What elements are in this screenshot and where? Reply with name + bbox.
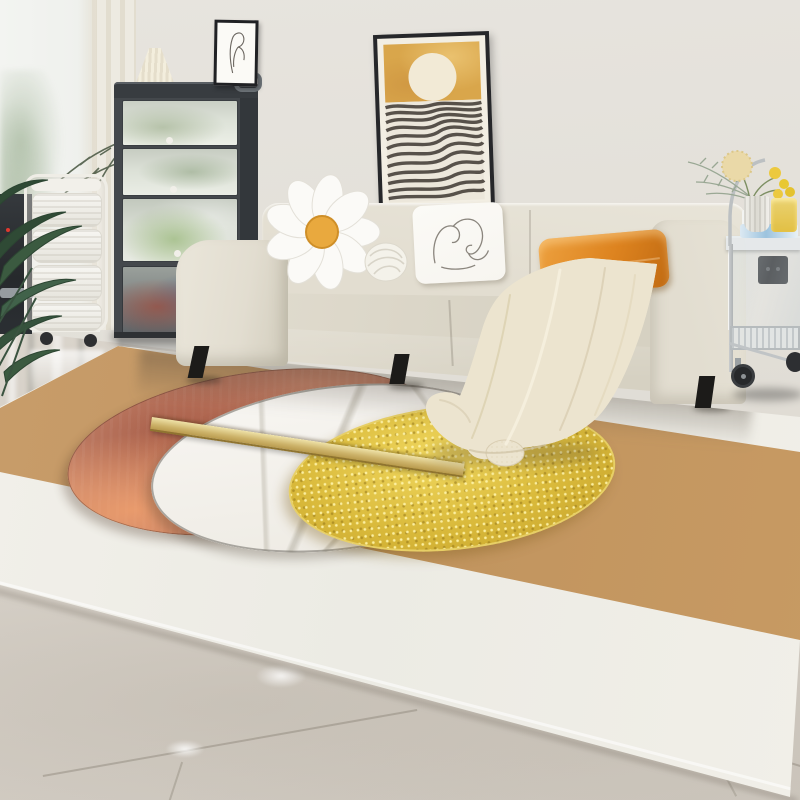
cart-drawer <box>32 229 102 263</box>
sun-waves-art <box>373 31 495 211</box>
orange-pillow <box>538 229 671 298</box>
abstract-face-line-icon <box>418 208 499 278</box>
rug-copper-circle <box>57 346 460 558</box>
left-floor-reflection <box>8 332 116 404</box>
tile-mottle <box>0 560 800 800</box>
grout-line <box>155 762 183 800</box>
cart-drawer <box>32 303 102 331</box>
cabinet-top-cap <box>114 82 258 98</box>
trolley-white-box <box>742 210 768 226</box>
rug-bottom-edge-seam <box>0 580 793 791</box>
houseplant-leaves <box>0 168 136 403</box>
trolley-top-shelf <box>726 236 800 250</box>
sofa-backrest <box>262 203 746 305</box>
leg-shadow <box>388 382 424 390</box>
device-led-red <box>6 228 10 232</box>
wall <box>0 0 800 480</box>
cabinet-base <box>114 332 258 338</box>
cabinet-knob <box>166 137 173 144</box>
rug-cast-shadow <box>0 588 798 800</box>
trolley-blue-tissue <box>740 224 798 238</box>
grout-line <box>43 709 418 777</box>
living-room-photo <box>0 0 800 800</box>
socket-pin <box>766 267 770 271</box>
floor-shine <box>255 664 307 688</box>
yellow-jar <box>771 198 797 232</box>
window-plant-blur <box>0 70 70 250</box>
cart-caster <box>40 332 53 345</box>
cart-drawer <box>32 193 102 227</box>
trolley-frame-curve <box>680 140 800 260</box>
power-socket <box>758 256 788 284</box>
art-mustard-sky <box>383 41 481 102</box>
sofa-back-seam <box>529 210 531 298</box>
grout-line <box>665 663 737 796</box>
cabinet-door-3 <box>122 198 238 262</box>
cabinet-door-1 <box>122 100 238 146</box>
curtain-soft-edge <box>78 0 96 330</box>
window <box>0 0 100 332</box>
cart-caster <box>84 334 97 347</box>
tile-floor <box>0 0 800 800</box>
sofa-seat-front-highlight <box>178 290 746 402</box>
storage-cabinet <box>114 82 258 338</box>
sheer-curtain <box>92 0 136 330</box>
leg-shadow <box>186 376 222 384</box>
cart-reflection <box>30 350 104 394</box>
rug-gold-bar <box>150 417 465 478</box>
lamp-stem <box>153 86 156 100</box>
sofa-leg <box>389 354 409 384</box>
trolley-diagonal-bar <box>729 342 800 366</box>
sofa-seat-seam <box>448 300 453 366</box>
throw-blanket <box>410 250 670 470</box>
palm-fronds-icon <box>40 85 210 205</box>
rug-tan-band <box>0 0 800 800</box>
area-rug <box>0 0 800 800</box>
trolley-glass-body <box>728 250 800 330</box>
caster-wheel <box>786 352 800 372</box>
floor-shine <box>165 740 205 758</box>
rug-gold-circle <box>281 389 622 566</box>
cabinet-reflection <box>118 338 256 368</box>
figure-sketch-icon <box>221 27 252 80</box>
cart-drawer <box>32 265 102 301</box>
socket-pin <box>776 267 780 271</box>
knot-ball-pillow <box>364 242 408 282</box>
caster-wheel <box>731 364 755 388</box>
leg-shadow <box>693 404 731 412</box>
cabinet-door-4 <box>122 266 238 334</box>
sofa-shadow-on-rug <box>136 348 753 448</box>
sofa-seat <box>178 290 746 402</box>
sofa-right-arm <box>650 220 746 404</box>
sofa-left-arm <box>176 240 288 366</box>
white-cart <box>24 174 108 332</box>
cabinet-handle <box>234 72 262 92</box>
blanket-shadow-on-rug <box>430 440 600 466</box>
cabinet-knob <box>174 250 181 257</box>
sofa-leg <box>188 346 210 378</box>
cabinet-shadow <box>112 332 262 342</box>
flower-vase <box>744 196 770 232</box>
dark-device <box>0 194 32 334</box>
orange-pillow-seam <box>548 257 659 273</box>
cabinet-door-2 <box>122 148 238 196</box>
small-white-object <box>219 72 228 82</box>
trolley-lower-shelf <box>730 326 800 350</box>
device-gray-bar <box>0 288 34 298</box>
cabinet-knob <box>170 186 177 193</box>
grout-line <box>477 666 800 767</box>
pleated-lamp-shade <box>134 48 176 88</box>
caster-wheel <box>735 358 741 368</box>
rug-marble-circle <box>141 364 534 573</box>
lineart-pillow <box>412 202 506 285</box>
trolley-post <box>729 244 733 372</box>
wheel-hub <box>741 374 746 379</box>
trolley-shadow <box>733 388 800 401</box>
art-sun <box>408 52 458 102</box>
cart-tray <box>31 179 101 191</box>
art-waves <box>385 99 484 202</box>
sofa-leg <box>695 376 715 408</box>
cabinet-side-panel <box>240 82 258 338</box>
floor-shine <box>722 606 776 628</box>
trolley-flowers <box>680 140 800 240</box>
daisy-pillow <box>260 178 384 286</box>
sketch-frame <box>213 20 258 87</box>
